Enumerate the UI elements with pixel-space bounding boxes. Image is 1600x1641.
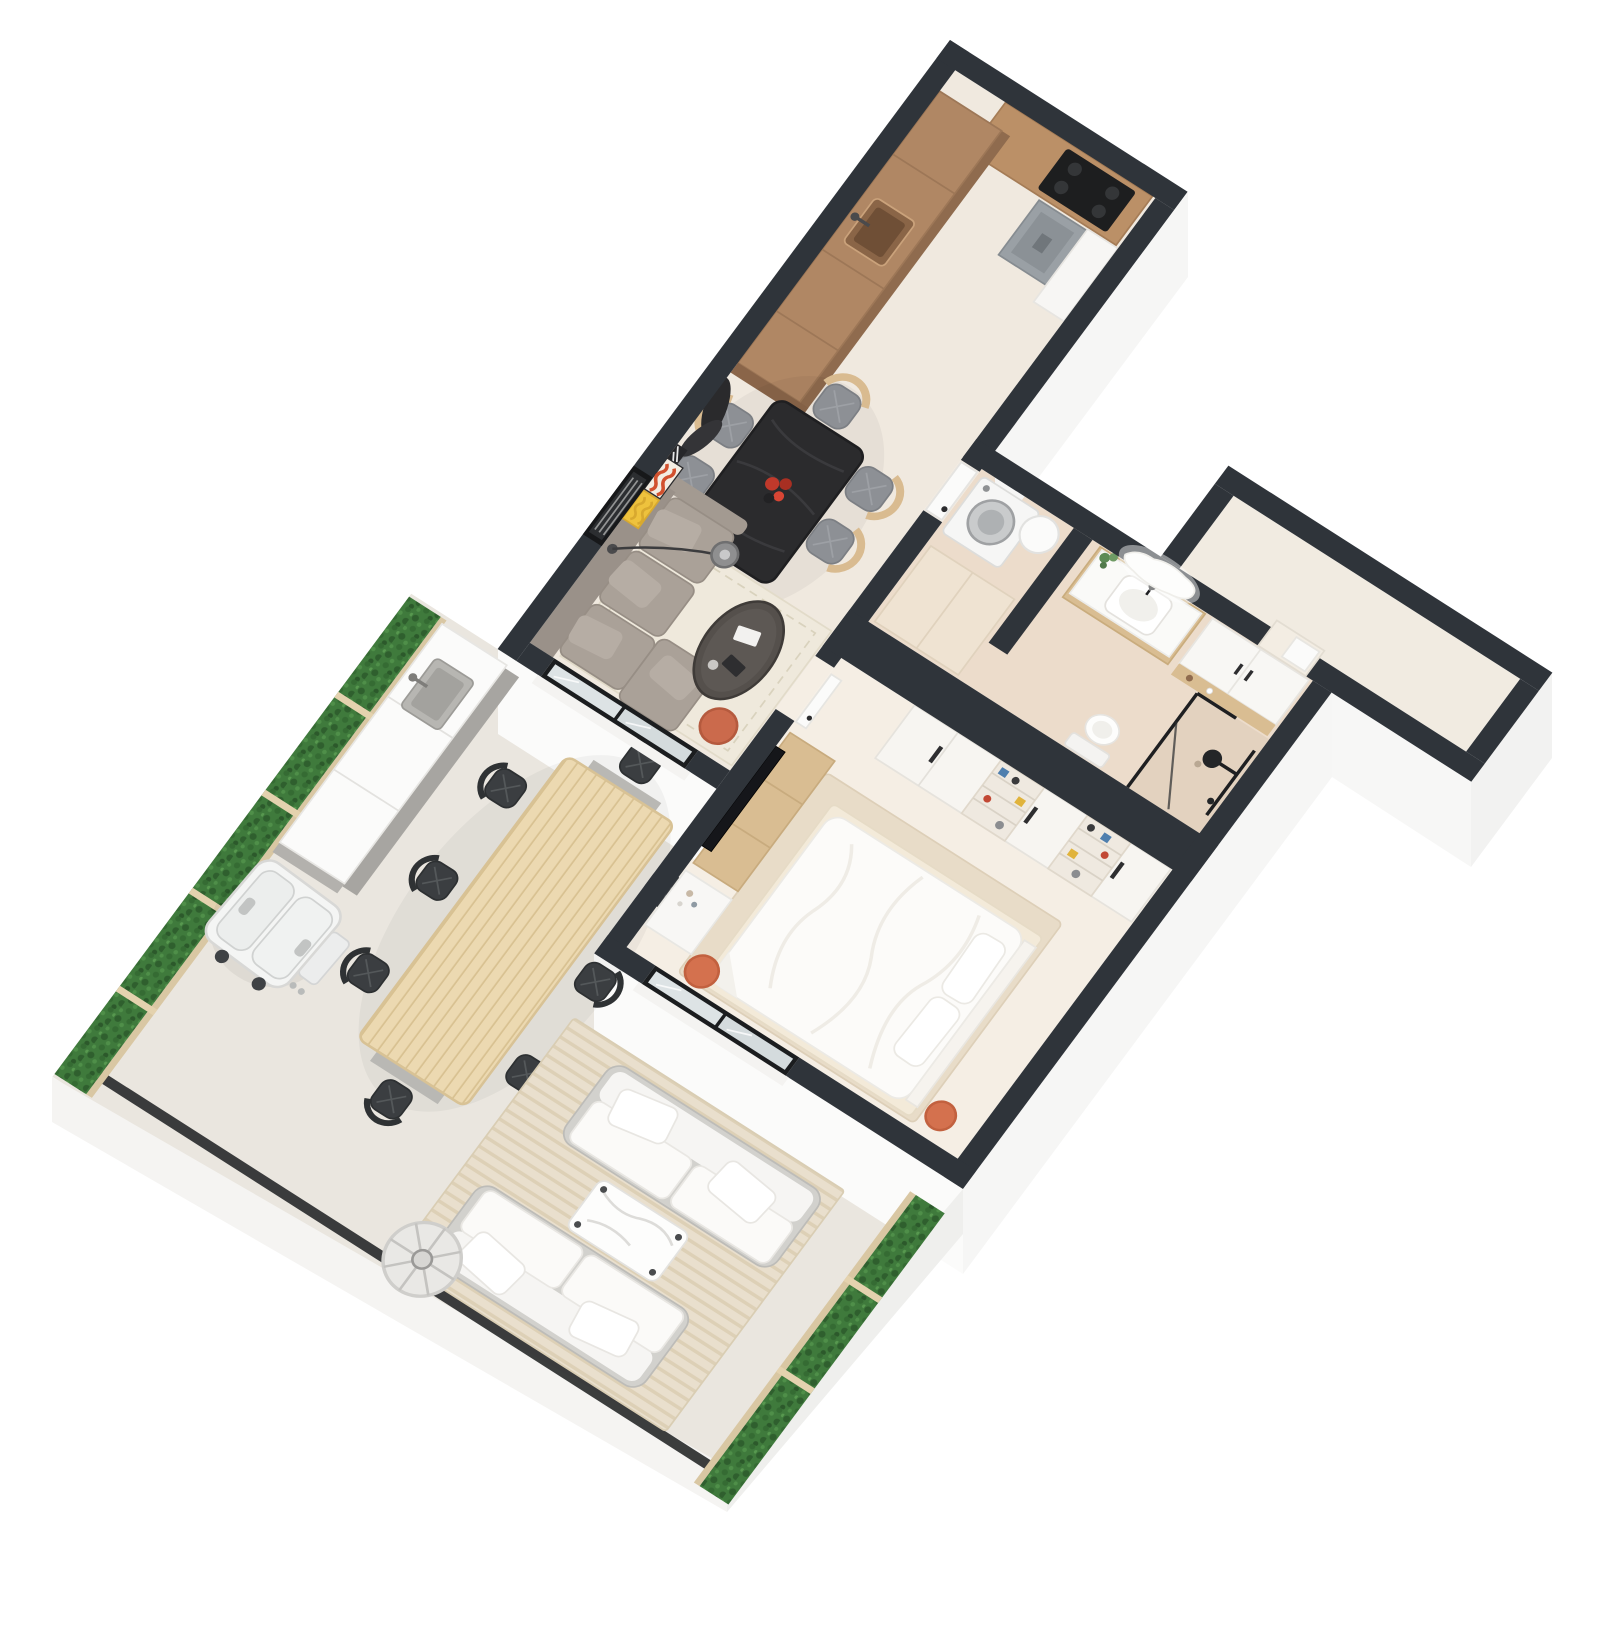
floor-plan-canvas	[0, 0, 1600, 1641]
